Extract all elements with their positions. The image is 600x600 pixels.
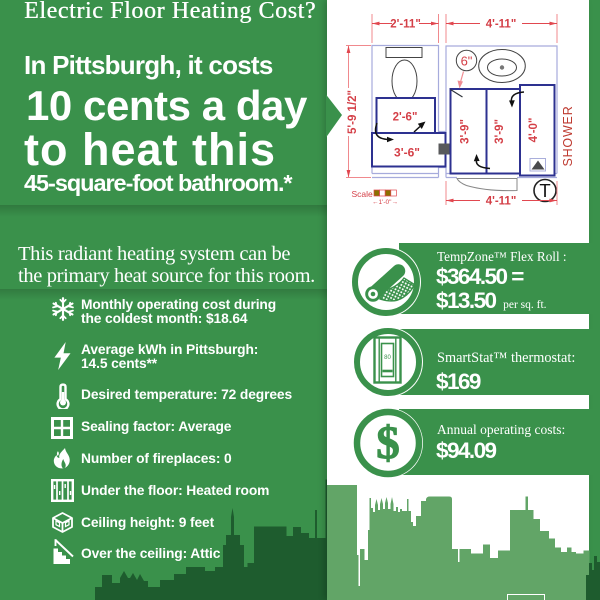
svg-text:Scale: Scale bbox=[352, 189, 374, 199]
svg-text:$: $ bbox=[376, 417, 400, 469]
svg-text:80: 80 bbox=[384, 355, 391, 361]
svg-text:4'-11": 4'-11" bbox=[486, 19, 517, 31]
svg-text:SHOWER: SHOWER bbox=[561, 105, 575, 166]
svg-text:T: T bbox=[539, 180, 550, 201]
svg-text:2'-11": 2'-11" bbox=[390, 19, 421, 31]
svg-text:5'-9 1/2": 5'-9 1/2" bbox=[347, 90, 359, 134]
svg-text:3'-6": 3'-6" bbox=[394, 146, 420, 160]
svg-text:3'-9": 3'-9" bbox=[460, 119, 472, 144]
svg-text:3'-9": 3'-9" bbox=[494, 119, 506, 144]
svg-text:←1'-0"→: ←1'-0"→ bbox=[372, 199, 398, 206]
svg-text:4'-0": 4'-0" bbox=[528, 118, 540, 143]
svg-text:6": 6" bbox=[461, 54, 473, 69]
svg-text:4'-11": 4'-11" bbox=[486, 196, 517, 208]
svg-text:2'-6": 2'-6" bbox=[393, 112, 418, 124]
